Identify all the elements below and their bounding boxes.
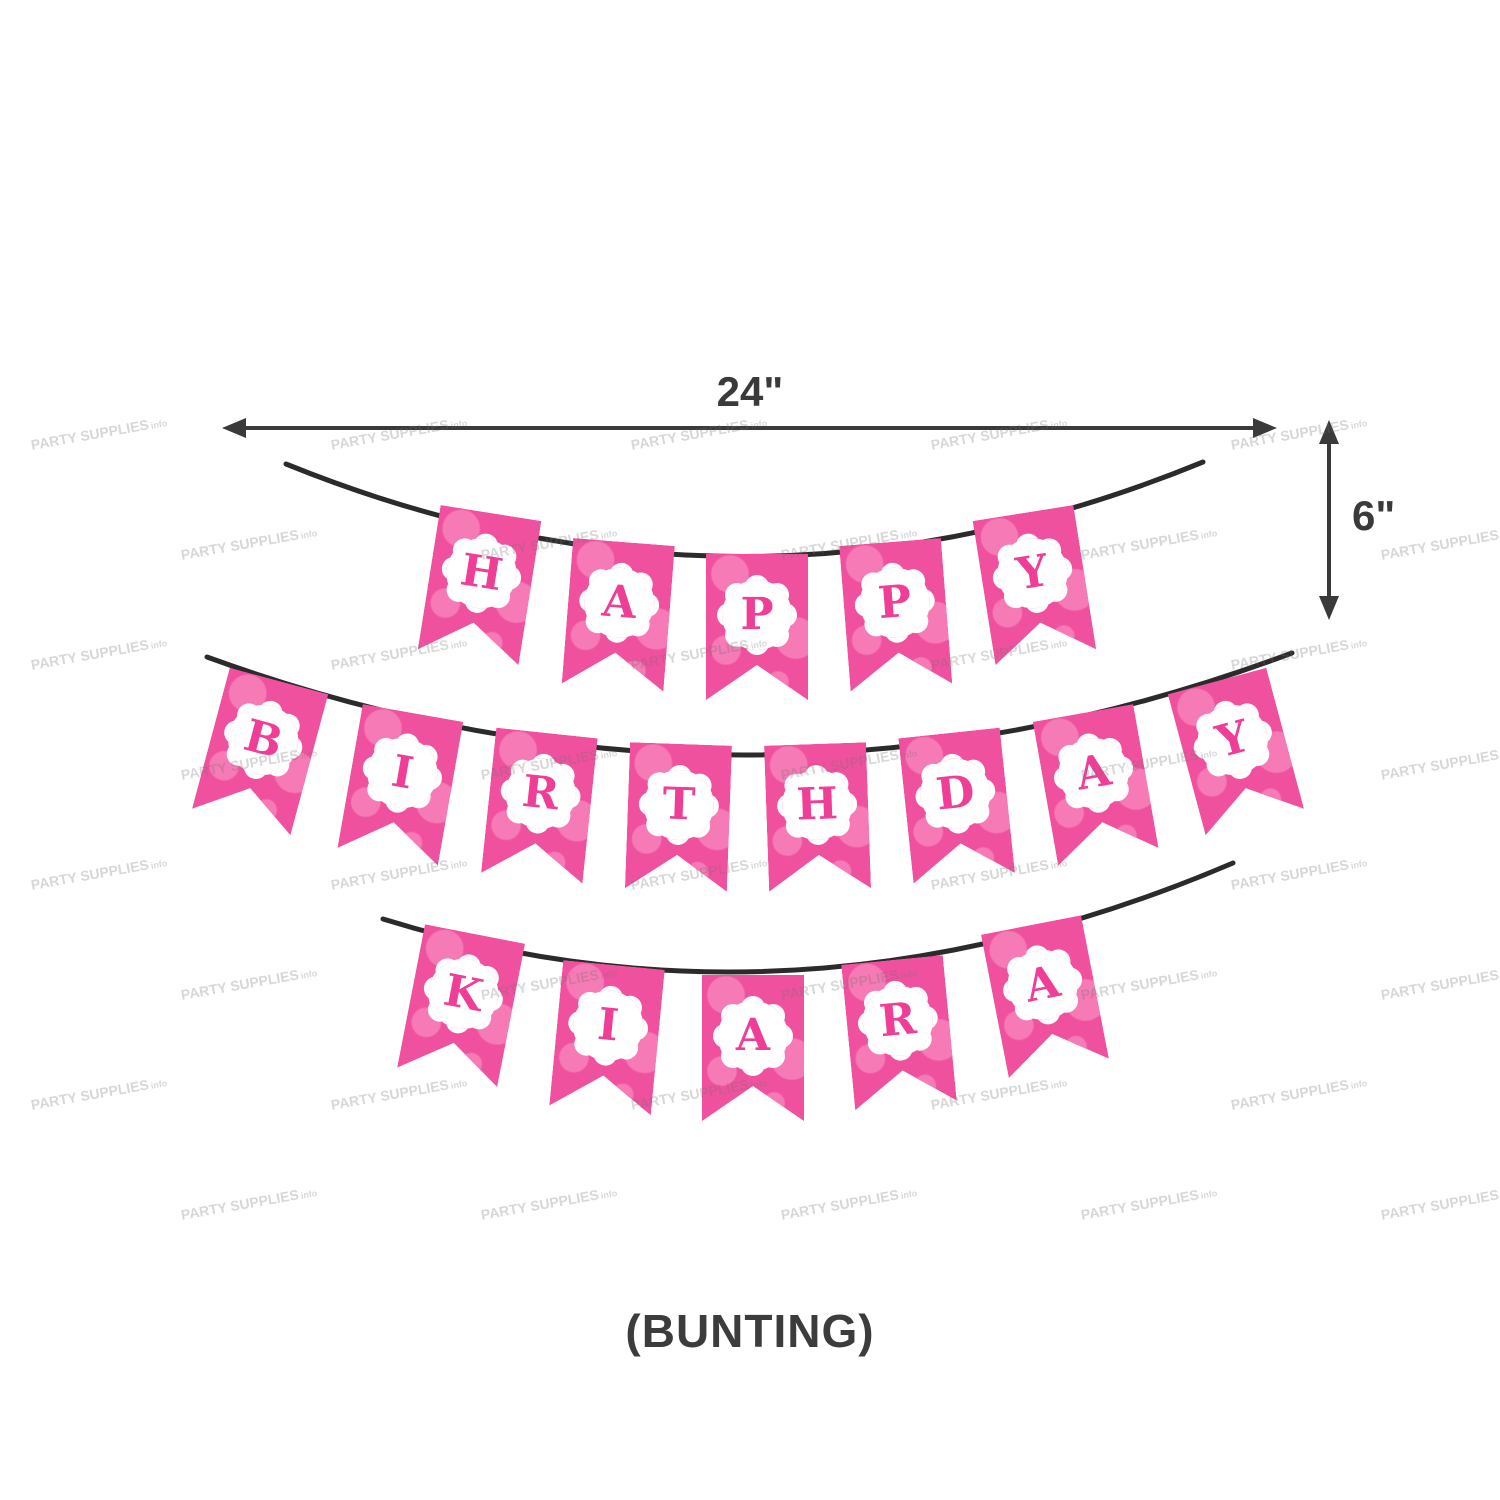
flag-kiara-4-R: R [841, 955, 957, 1110]
height-dimension-label: 6" [1352, 492, 1395, 540]
flag-letter: T [662, 782, 696, 827]
bunting-flags: HAPPYBIRTHDAYKIARA [0, 0, 1500, 1500]
flag-happy-4-P: P [839, 538, 952, 692]
flag-kiara-5-A: A [981, 915, 1109, 1078]
flag-kiara-2-I: I [549, 960, 665, 1115]
flag-letter: H [796, 782, 839, 827]
flag-happy-1-H: H [418, 505, 542, 665]
flag-letter: Y [1014, 549, 1052, 597]
flag-kiara-3-A: A [702, 975, 804, 1121]
flag-letter: D [934, 770, 977, 818]
flag-kiara-1-K: K [397, 924, 525, 1087]
flag-letter: K [440, 969, 486, 1019]
flag-letter-badge: P [722, 580, 792, 650]
flag-letter: I [388, 750, 416, 797]
flag-letter-badge: A [718, 1001, 788, 1071]
flag-birthday-4-T: T [625, 742, 732, 891]
flag-letter: I [596, 1003, 621, 1049]
flag-letter: Y [1212, 715, 1254, 766]
flag-birthday-5-H: H [764, 742, 871, 891]
flag-letter: A [736, 1014, 770, 1058]
flag-letter: P [740, 593, 773, 637]
flag-happy-2-A: A [562, 538, 675, 692]
flag-letter: H [457, 548, 505, 598]
flag-birthday-6-D: D [898, 728, 1015, 884]
flag-letter: P [877, 580, 913, 626]
flag-birthday-8-Y: Y [1168, 668, 1304, 835]
flag-birthday-1-B: B [192, 668, 328, 835]
flag-birthday-7-A: A [1033, 704, 1159, 865]
flag-happy-3-P: P [706, 554, 808, 700]
flag-birthday-3-R: R [481, 728, 598, 884]
flag-letter: R [520, 770, 561, 818]
bunting-caption: (BUNTING) [0, 1304, 1500, 1358]
flag-letter: A [1022, 960, 1064, 1010]
flag-birthday-2-I: I [337, 704, 463, 865]
width-dimension-label: 24" [690, 368, 810, 416]
flag-letter: R [878, 997, 919, 1044]
flag-happy-5-Y: Y [973, 505, 1097, 665]
product-image: HAPPYBIRTHDAYKIARA PARTY SUPPLIESinfoPAR… [0, 0, 1500, 1500]
flag-letter: A [600, 580, 637, 627]
flag-letter: A [1073, 748, 1114, 797]
flag-letter: B [240, 714, 287, 766]
